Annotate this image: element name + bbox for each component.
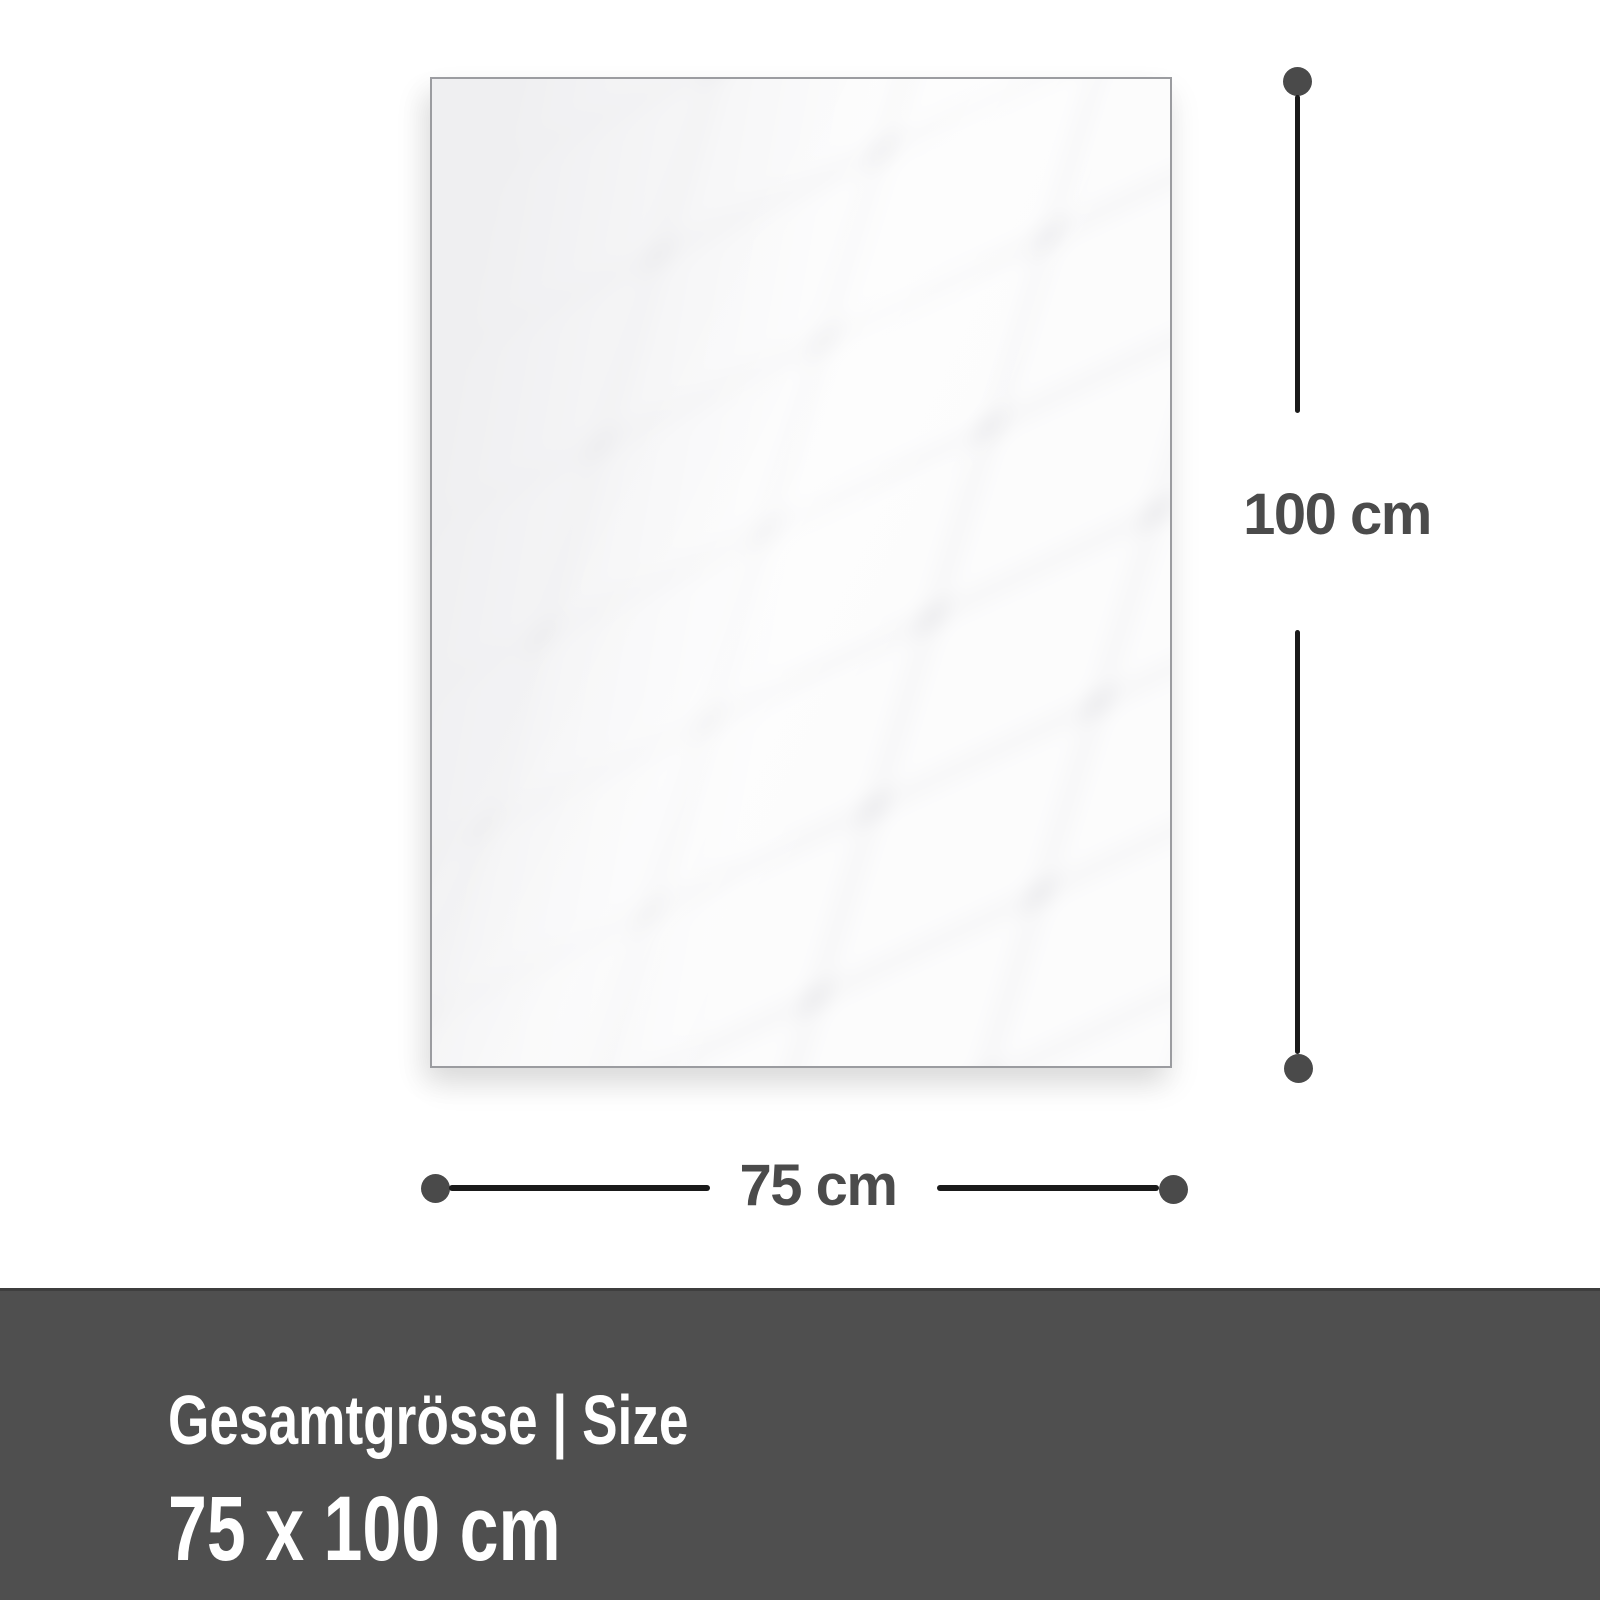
product-size-diagram: 100 cm 75 cm Gesamtgrösse | Size 75 x 10…: [0, 0, 1600, 1600]
panel-gloss-reflection: [432, 79, 1170, 1066]
gloss-sheen: [432, 79, 1170, 1066]
dimension-endpoint-dot-right: [1159, 1175, 1188, 1204]
dimension-endpoint-dot-left: [421, 1174, 450, 1203]
width-dimension-line-left: [449, 1185, 710, 1191]
height-dimension-line-lower: [1295, 630, 1300, 1054]
footer-size-value: 75 x 100 cm: [168, 1483, 561, 1575]
height-dimension-line-upper: [1295, 95, 1300, 413]
dimension-endpoint-dot-top: [1283, 67, 1312, 96]
product-panel: [430, 77, 1172, 1068]
height-dimension-label: 100 cm: [1243, 486, 1431, 544]
dimension-endpoint-dot-bottom: [1284, 1054, 1313, 1083]
width-dimension-label: 75 cm: [740, 1157, 897, 1215]
width-dimension-line-right: [937, 1185, 1159, 1191]
footer-title: Gesamtgrösse | Size: [168, 1385, 689, 1455]
size-footer-banner: Gesamtgrösse | Size 75 x 100 cm: [0, 1288, 1600, 1600]
